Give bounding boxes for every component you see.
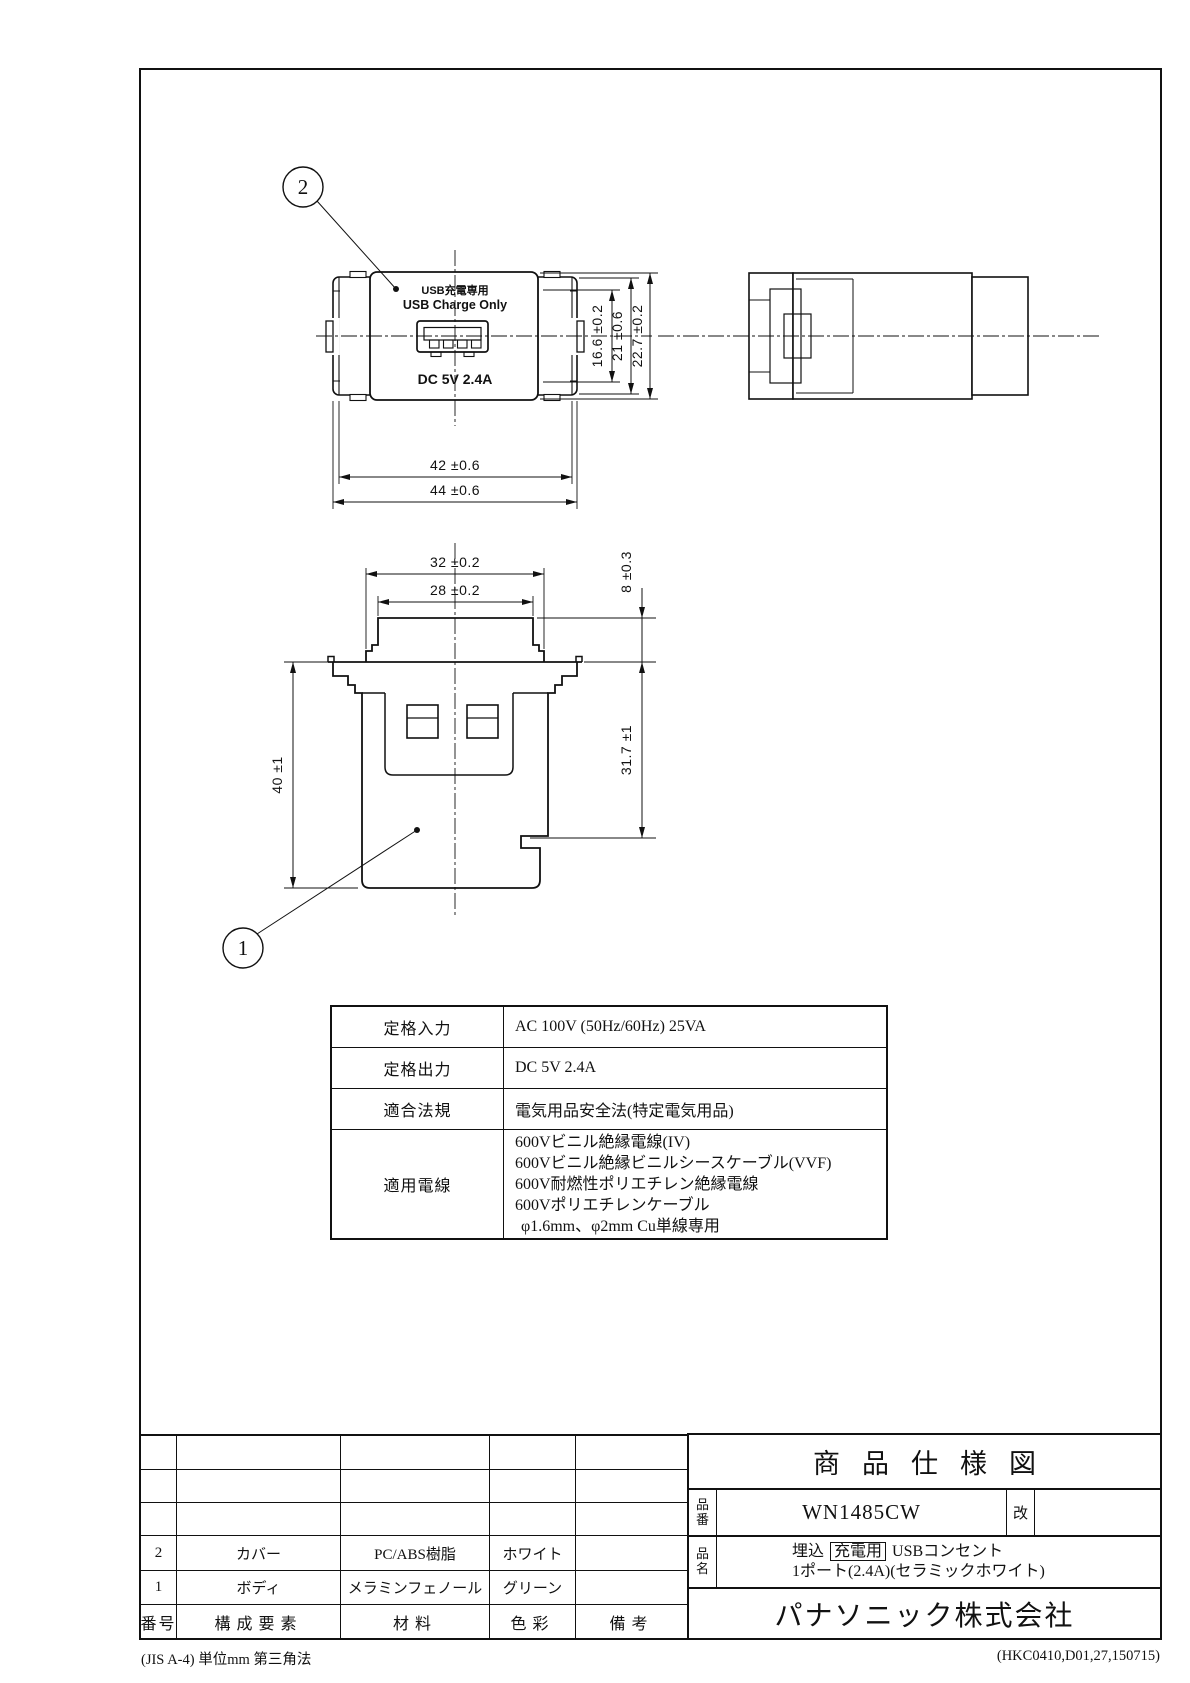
part-number-label: 品番	[689, 1490, 717, 1535]
specification-drawing-sheet: USB充電専用 USB Charge Only DC 5V 2.4A 16.6 …	[0, 0, 1190, 1683]
part-component: ボディ	[177, 1571, 341, 1605]
revision-value-empty	[1035, 1490, 1160, 1535]
header-material: 材料	[341, 1605, 490, 1638]
drawing-views: USB充電専用 USB Charge Only DC 5V 2.4A 16.6 …	[0, 0, 1190, 1010]
spec-value: 電気用品安全法(特定電気用品)	[504, 1089, 886, 1130]
side-view	[658, 273, 1100, 399]
callout-1	[223, 827, 420, 968]
part-color: ホワイト	[490, 1536, 576, 1571]
dim-21: 21 ±0.6	[609, 311, 625, 361]
spec-value: AC 100V (50Hz/60Hz) 25VA	[504, 1007, 886, 1048]
footer-note-right: (HKC0410,D01,27,150715)	[997, 1648, 1160, 1665]
dim-16-6: 16.6 ±0.2	[589, 305, 605, 368]
spec-value: 600Vビニル絶縁電線(IV) 600Vビニル絶縁ビニルシースケーブル(VVF)…	[504, 1130, 886, 1238]
header-no: 番号	[141, 1605, 177, 1638]
title-block: 商品仕様図 品番 WN1485CW 改 品名 埋込 充電用 USBコンセント 1…	[687, 1433, 1162, 1640]
usb-port-icon	[417, 321, 488, 357]
part-color: グリーン	[490, 1571, 576, 1605]
part-note	[576, 1536, 687, 1571]
dim-44: 44 ±0.6	[430, 482, 480, 498]
dim-31-7: 31.7 ±1	[618, 725, 634, 775]
part-no: 1	[141, 1571, 177, 1605]
front-label-jp: USB充電専用	[421, 283, 488, 297]
part-number-value: WN1485CW	[717, 1490, 1007, 1535]
parts-table: 2 カバー PC/ABS樹脂 ホワイト 1 ボディ メラミンフェノール グリーン…	[139, 1434, 687, 1640]
part-note	[576, 1571, 687, 1605]
part-no: 2	[141, 1536, 177, 1571]
dim-8: 8 ±0.3	[618, 551, 634, 593]
callout-2-number: 2	[298, 175, 309, 199]
spec-table: 定格入力 AC 100V (50Hz/60Hz) 25VA 定格出力 DC 5V…	[330, 1005, 888, 1240]
header-component: 構成要素	[177, 1605, 341, 1638]
revision-label: 改	[1007, 1490, 1035, 1535]
footer-note-left: (JIS A-4) 単位mm 第三角法	[141, 1648, 311, 1669]
part-name-value: 埋込 充電用 USBコンセント 1ポート(2.4A)(セラミックホワイト)	[717, 1537, 1160, 1587]
rear-view-dimensions	[284, 568, 656, 888]
spec-label: 定格入力	[332, 1007, 504, 1048]
dim-28: 28 ±0.2	[430, 582, 480, 598]
header-color: 色彩	[490, 1605, 576, 1638]
spec-label: 定格出力	[332, 1048, 504, 1089]
left-claw	[326, 321, 333, 352]
company-name: パナソニック株式会社	[689, 1589, 1160, 1638]
part-number-row: 品番 WN1485CW 改	[689, 1490, 1160, 1537]
right-claw	[577, 321, 584, 352]
part-component: カバー	[177, 1536, 341, 1571]
part-name-row: 品名 埋込 充電用 USBコンセント 1ポート(2.4A)(セラミックホワイト)	[689, 1537, 1160, 1589]
terminal-hole-left	[407, 705, 438, 738]
spec-label: 適用電線	[332, 1130, 504, 1238]
part-material: PC/ABS樹脂	[341, 1536, 490, 1571]
part-material: メラミンフェノール	[341, 1571, 490, 1605]
part-name-label: 品名	[689, 1537, 717, 1587]
dim-42: 42 ±0.6	[430, 457, 480, 473]
front-label-rating: DC 5V 2.4A	[418, 371, 493, 387]
spec-value: DC 5V 2.4A	[504, 1048, 886, 1089]
spec-label: 適合法規	[332, 1089, 504, 1130]
dim-22-7: 22.7 ±0.2	[629, 305, 645, 368]
terminal-hole-right	[467, 705, 498, 738]
dim-40: 40 ±1	[269, 756, 285, 793]
callout-1-number: 1	[238, 936, 249, 960]
drawing-title: 商品仕様図	[689, 1435, 1160, 1490]
boxed-charge-only: 充電用	[830, 1542, 886, 1561]
dim-32: 32 ±0.2	[430, 554, 480, 570]
front-label-en: USB Charge Only	[403, 298, 507, 312]
header-note: 備考	[576, 1605, 687, 1638]
